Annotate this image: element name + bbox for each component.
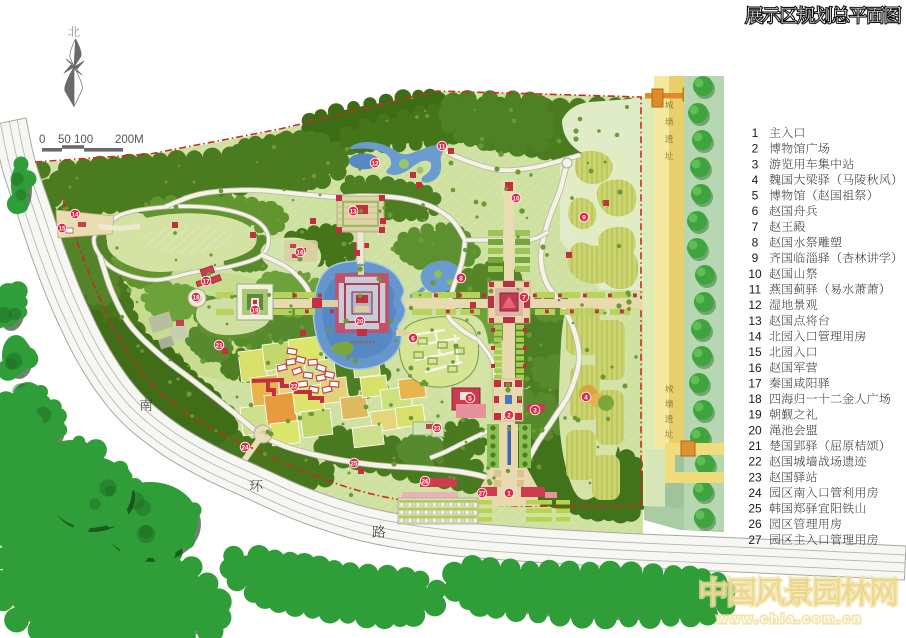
svg-text:20: 20 [356, 318, 364, 325]
svg-text:6: 6 [411, 335, 415, 342]
svg-text:10: 10 [512, 195, 520, 202]
svg-text:17: 17 [748, 376, 762, 390]
svg-text:23: 23 [748, 470, 762, 484]
svg-text:21: 21 [215, 342, 223, 349]
svg-text:9: 9 [582, 214, 586, 221]
svg-text:www.chla.com.cn: www.chla.com.cn [716, 611, 863, 626]
svg-text:25: 25 [748, 502, 762, 516]
svg-text:27: 27 [478, 490, 486, 497]
svg-text:7: 7 [752, 220, 759, 234]
svg-text:200M: 200M [115, 134, 144, 146]
svg-text:8: 8 [752, 236, 759, 250]
svg-text:2: 2 [507, 412, 511, 419]
svg-text:12: 12 [748, 298, 762, 312]
svg-text:17: 17 [202, 278, 210, 285]
svg-text:13: 13 [349, 208, 357, 215]
svg-text:18: 18 [192, 294, 200, 301]
svg-text:3: 3 [533, 407, 537, 414]
svg-text:13: 13 [748, 314, 762, 328]
svg-text:22: 22 [748, 455, 762, 469]
svg-text:2: 2 [752, 142, 759, 156]
svg-text:11: 11 [749, 283, 762, 297]
svg-text:5: 5 [752, 189, 759, 203]
svg-text:24: 24 [748, 486, 762, 500]
svg-text:25: 25 [350, 460, 358, 467]
svg-text:26: 26 [421, 478, 429, 485]
svg-text:50: 50 [58, 134, 71, 146]
svg-text:10: 10 [748, 267, 762, 281]
svg-text:16: 16 [748, 361, 762, 375]
svg-text:4: 4 [584, 394, 588, 401]
svg-text:18: 18 [748, 392, 762, 406]
svg-text:11: 11 [439, 143, 446, 150]
svg-text:4: 4 [752, 173, 759, 187]
svg-text:16: 16 [296, 249, 304, 256]
svg-text:14: 14 [748, 330, 762, 344]
svg-text:26: 26 [748, 517, 762, 531]
svg-text:0: 0 [39, 134, 45, 146]
svg-text:8: 8 [459, 275, 463, 282]
svg-text:20: 20 [748, 423, 762, 437]
svg-text:15: 15 [58, 225, 66, 232]
svg-text:6: 6 [752, 204, 759, 218]
svg-text:12: 12 [371, 160, 379, 167]
svg-text:19: 19 [748, 408, 762, 422]
svg-text:14: 14 [71, 211, 79, 218]
svg-text:3: 3 [752, 157, 759, 171]
svg-text:19: 19 [251, 307, 259, 314]
svg-text:22: 22 [290, 383, 298, 390]
svg-text:7: 7 [522, 294, 526, 301]
svg-text:21: 21 [748, 439, 762, 453]
svg-text:15: 15 [748, 345, 762, 359]
svg-text:27: 27 [748, 533, 762, 547]
svg-text:23: 23 [433, 425, 441, 432]
svg-text:100: 100 [74, 134, 93, 146]
svg-text:5: 5 [468, 395, 472, 402]
svg-text:1: 1 [507, 490, 511, 497]
svg-text:24: 24 [241, 444, 249, 451]
svg-text:1: 1 [752, 126, 759, 140]
svg-text:9: 9 [752, 251, 759, 265]
